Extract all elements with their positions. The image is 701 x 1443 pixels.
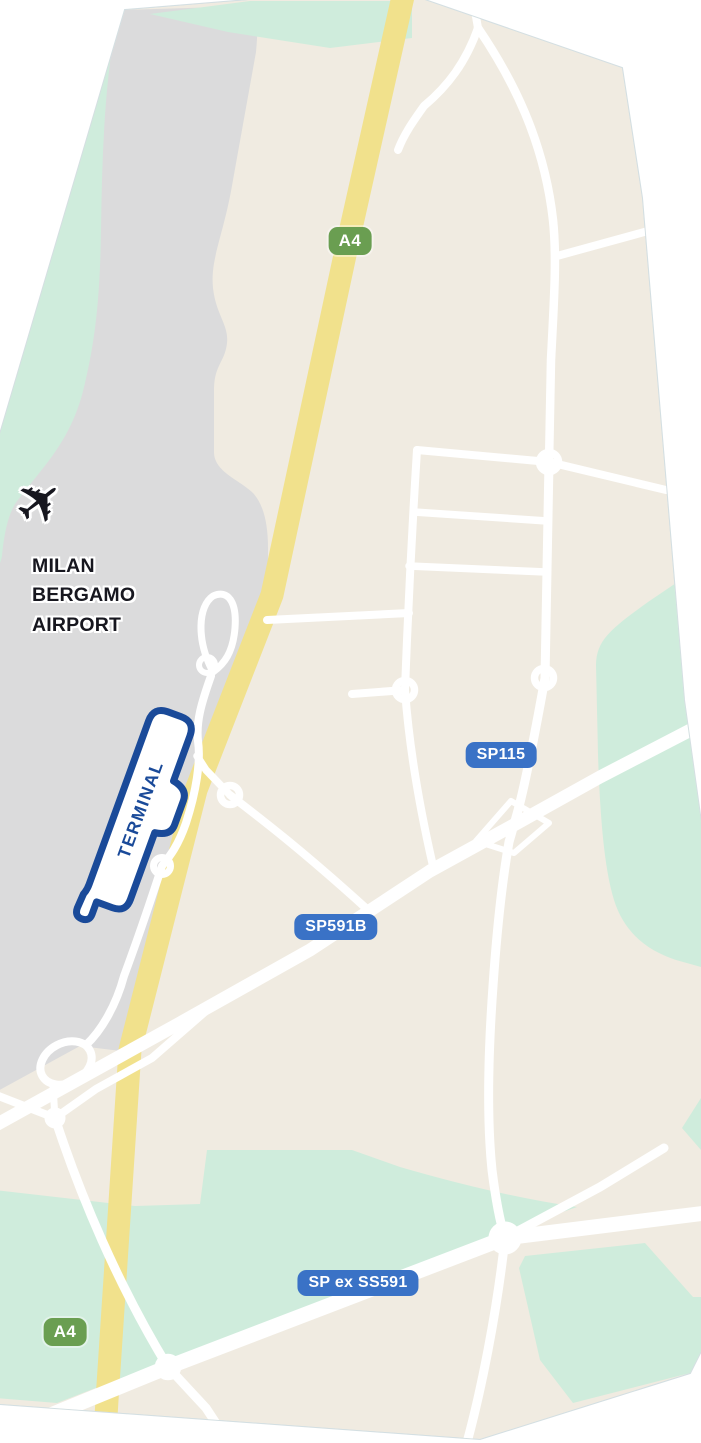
map-canvas[interactable]: TERMINAL ✈ MILAN BERGAMO AIRPORT A4 A4 S… — [0, 0, 701, 1443]
badge-sp591b: SP591B — [294, 914, 377, 940]
airport-name-line: BERGAMO — [32, 581, 135, 610]
badge-a4-bottom: A4 — [44, 1318, 87, 1346]
map-graphic: TERMINAL — [0, 0, 701, 1443]
airport-name-line: MILAN — [32, 552, 135, 581]
airport-name-label: MILAN BERGAMO AIRPORT — [32, 552, 135, 640]
badge-sp-ex-ss591: SP ex SS591 — [297, 1270, 418, 1296]
badge-a4-top: A4 — [329, 227, 372, 255]
airport-name-line: AIRPORT — [32, 611, 135, 640]
badge-sp115: SP115 — [466, 742, 537, 768]
road-sp115-mid — [545, 462, 549, 678]
